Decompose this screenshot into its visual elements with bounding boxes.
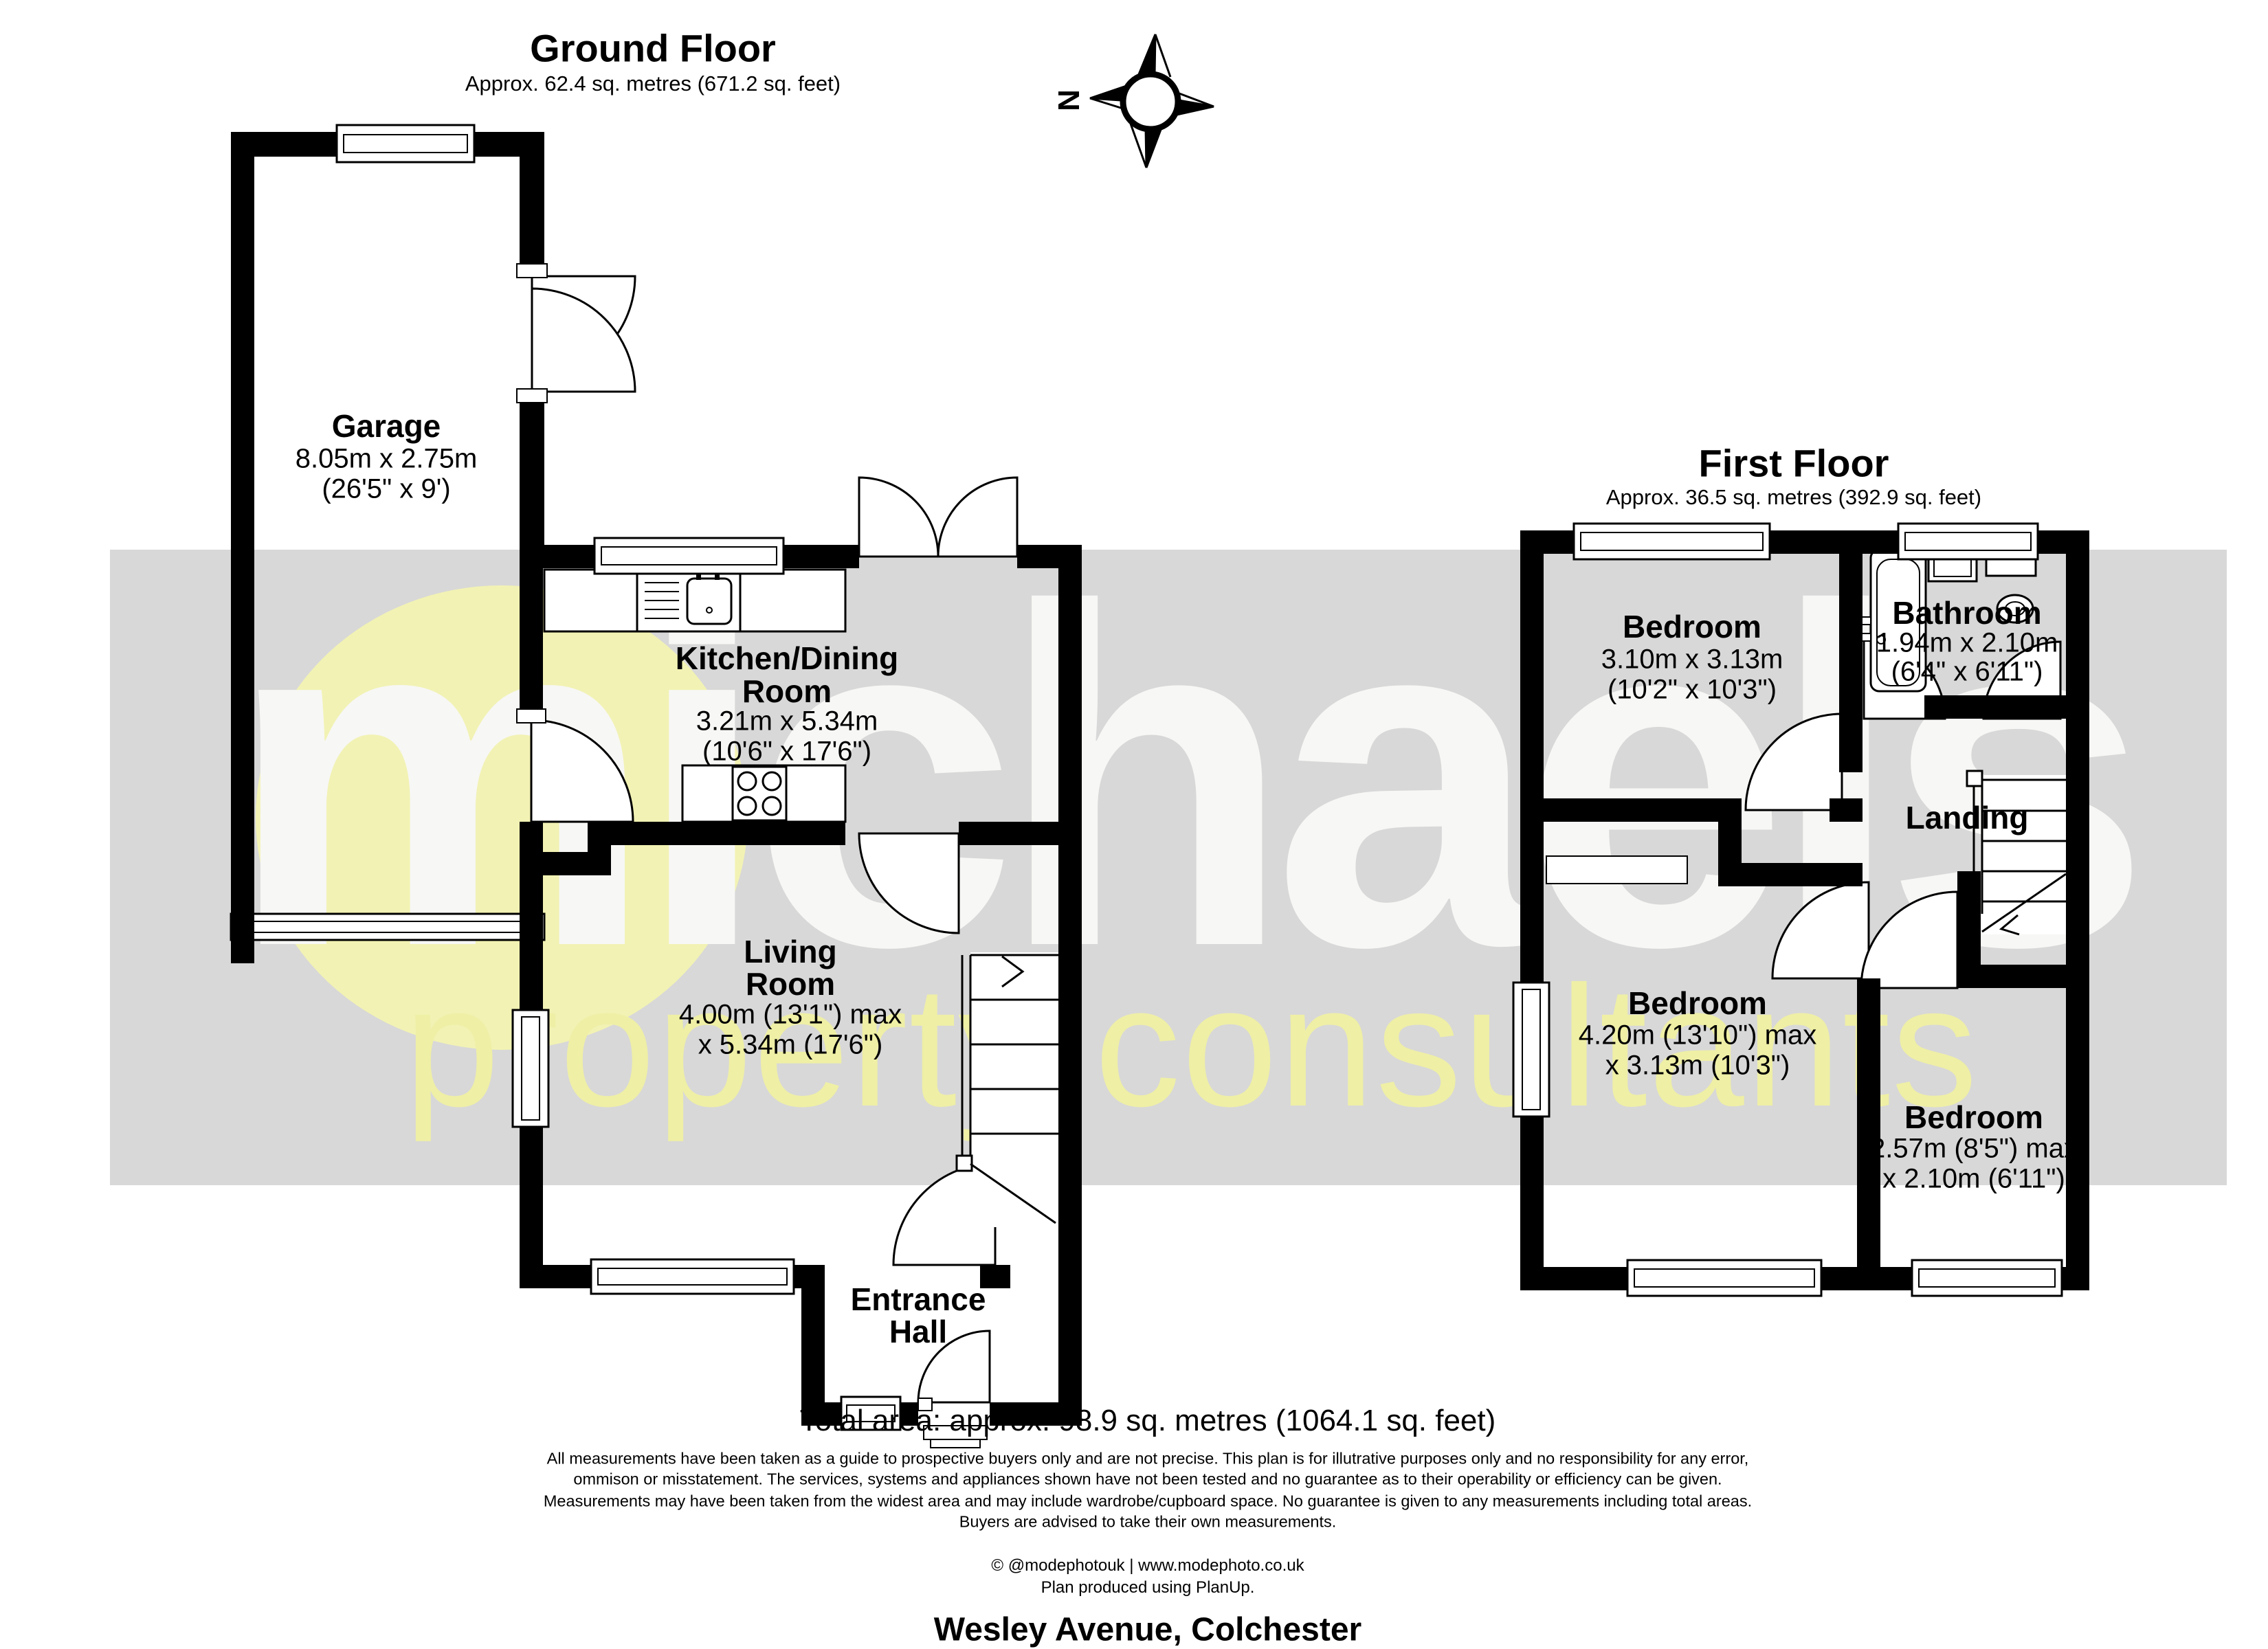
living-side-window (513, 1010, 548, 1127)
bathroom-imperial: (6'4" x 6'11") (1891, 657, 2043, 688)
bedroom1-metric: 3.10m x 3.13m (1601, 644, 1783, 675)
total-area: Total area: approx. 98.9 sq. metres (106… (800, 1404, 1496, 1438)
stairs-ground (957, 952, 1058, 1227)
bedroom3-window (1912, 1260, 2062, 1296)
kitchen-imperial: (10'6" x 17'6") (702, 737, 871, 767)
landing-name: Landing (1906, 799, 2029, 836)
garage-imperial: (26'5" x 9') (322, 474, 450, 505)
living-imperial: x 5.34m (17'6") (698, 1030, 883, 1061)
sink-basin (687, 579, 731, 624)
first-floor-title: First Floor (1699, 441, 1889, 486)
bathroom-name: Bathroom (1892, 594, 2041, 631)
garage-metric: 8.05m x 2.75m (296, 444, 478, 475)
living-metric: 4.00m (13'1") max (679, 1000, 902, 1031)
bathroom-window (1898, 524, 2038, 559)
disclaimer-line-3: Measurements may have been taken from th… (544, 1492, 1752, 1511)
copyright-line: © @modephotouk | www.modephoto.co.uk (991, 1556, 1304, 1575)
kitchen-window (594, 538, 783, 574)
bedroom3-door (1861, 892, 1957, 988)
bedroom1-imperial: (10'2" x 10'3") (1608, 675, 1777, 706)
kitchen-name-1: Kitchen/Dining (676, 640, 899, 677)
bedroom2-metric: 4.20m (13'10") max (1579, 1020, 1816, 1051)
bedroom3-name: Bedroom (1904, 1099, 2043, 1136)
bedroom2-name: Bedroom (1628, 985, 1767, 1022)
bedroom2-imperial: x 3.13m (10'3") (1605, 1051, 1790, 1081)
stairs-first (1967, 771, 2066, 934)
compass-north-label: N (1052, 89, 1086, 111)
garage-name: Garage (332, 407, 441, 445)
bedroom1-door (1746, 714, 1842, 810)
french-door-leaf1 (859, 478, 938, 557)
bedroom2-door (1772, 882, 1869, 978)
french-door-leaf2 (938, 478, 1017, 557)
produced-line: Plan produced using PlanUp. (1041, 1578, 1255, 1597)
compass-icon: N (1052, 34, 1214, 168)
first-floor-area: Approx. 36.5 sq. metres (392.9 sq. feet) (1606, 485, 1981, 510)
bedroom2-window (1627, 1260, 1821, 1296)
garage-kitchen-door (531, 720, 633, 822)
ground-floor-title: Ground Floor (530, 26, 776, 71)
wardrobe-outline (1546, 856, 1687, 884)
bedroom3-metric: 2.57m (8'5") max (1870, 1134, 2078, 1165)
ground-floor-area: Approx. 62.4 sq. metres (671.2 sq. feet) (465, 71, 841, 96)
kitchen-living-door (859, 833, 959, 933)
living-window (591, 1259, 794, 1294)
bathroom-metric: 1.94m x 2.10m (1876, 628, 2058, 659)
bedroom1-window (1574, 524, 1770, 559)
disclaimer-line-4: Buyers are advised to take their own mea… (959, 1513, 1337, 1532)
kitchen-name-2: Room (742, 673, 832, 710)
garage-window (337, 125, 474, 162)
living-name-1: Living (744, 933, 836, 970)
hall-name-1: Entrance (851, 1281, 986, 1318)
kitchen-metric: 3.21m x 5.34m (696, 706, 878, 737)
disclaimer-line-2: ommison or misstatement. The services, s… (573, 1470, 1722, 1489)
bedroom2-side-window (1513, 983, 1549, 1117)
disclaimer-line-1: All measurements have been taken as a gu… (547, 1450, 1749, 1468)
hall-name-2: Hall (889, 1313, 947, 1350)
bedroom3-imperial: x 2.10m (6'11") (1882, 1164, 2065, 1195)
garage-door-front (231, 914, 544, 940)
living-name-2: Room (746, 965, 835, 1002)
bedroom1-name: Bedroom (1623, 608, 1761, 645)
address-title: Wesley Avenue, Colchester (934, 1611, 1361, 1649)
